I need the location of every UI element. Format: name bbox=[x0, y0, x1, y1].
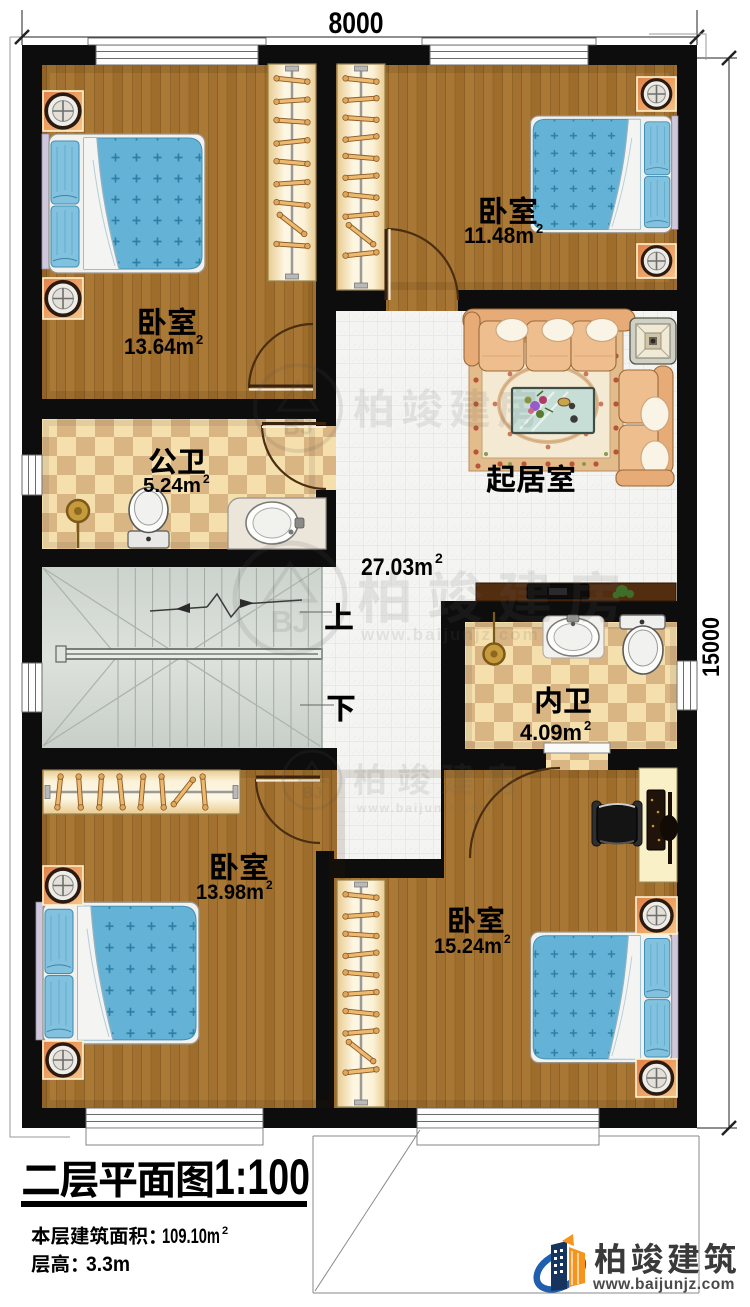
svg-text:2: 2 bbox=[435, 550, 443, 566]
svg-text:2: 2 bbox=[266, 878, 273, 892]
svg-text:www.baijunjz.com: www.baijunjz.com bbox=[356, 801, 493, 815]
svg-text:3.3m: 3.3m bbox=[86, 1253, 130, 1276]
svg-text:BJ: BJ bbox=[271, 606, 310, 639]
svg-text:2: 2 bbox=[504, 932, 511, 946]
svg-text:BJ: BJ bbox=[302, 785, 322, 802]
svg-text:2: 2 bbox=[203, 472, 210, 486]
svg-text:15.24m: 15.24m bbox=[434, 935, 502, 958]
svg-text:13.98m: 13.98m bbox=[196, 881, 264, 904]
svg-text:1:100: 1:100 bbox=[214, 1149, 310, 1205]
svg-text:2: 2 bbox=[536, 221, 543, 236]
svg-text:4.09m: 4.09m bbox=[520, 720, 582, 745]
svg-text:2: 2 bbox=[584, 718, 591, 733]
svg-text:2: 2 bbox=[222, 1225, 228, 1237]
svg-text:www.baijunjz.com: www.baijunjz.com bbox=[592, 1276, 735, 1293]
svg-text:15000: 15000 bbox=[698, 617, 725, 677]
svg-text:109.10m: 109.10m bbox=[162, 1225, 220, 1248]
svg-text:13.64m: 13.64m bbox=[124, 334, 194, 359]
svg-text:BJ: BJ bbox=[283, 415, 313, 441]
svg-text:5.24m: 5.24m bbox=[143, 475, 201, 497]
svg-text:11.48m: 11.48m bbox=[464, 223, 534, 248]
svg-text:8000: 8000 bbox=[329, 7, 384, 40]
svg-text:www.baijunjz.com: www.baijunjz.com bbox=[360, 625, 540, 644]
svg-text:2: 2 bbox=[196, 332, 203, 347]
